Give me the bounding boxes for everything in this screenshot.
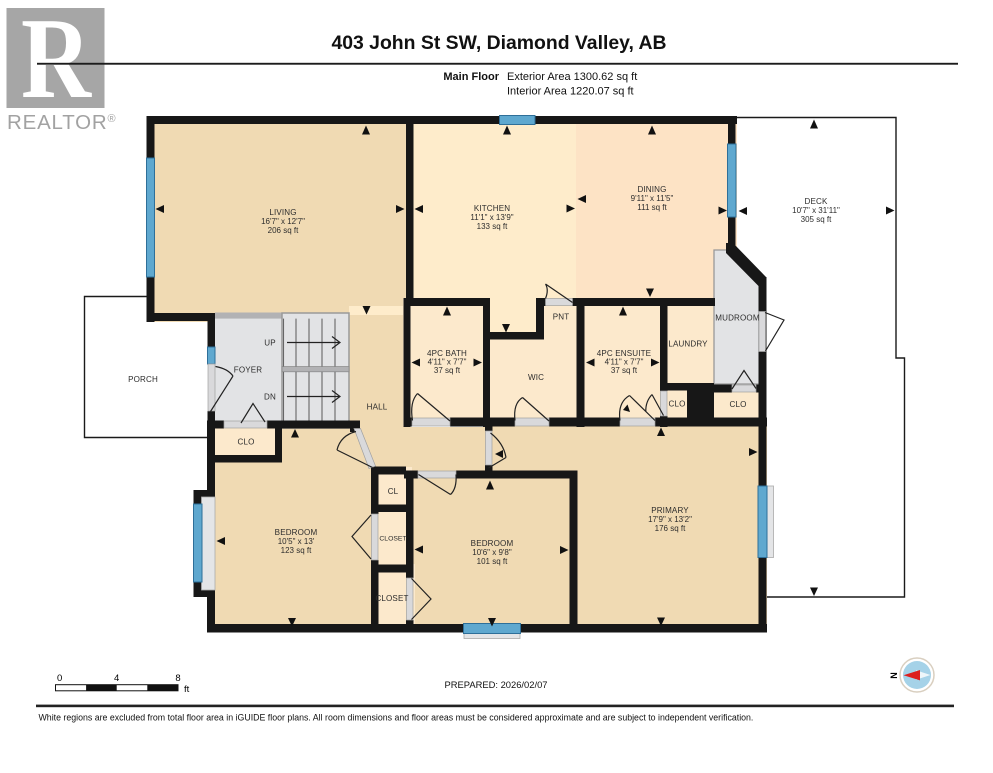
svg-text:REALTOR®: REALTOR® <box>7 111 116 134</box>
svg-text:MUDROOM: MUDROOM <box>715 314 760 323</box>
svg-text:DINING: DINING <box>637 185 666 194</box>
svg-text:DN: DN <box>264 393 276 402</box>
svg-text:BEDROOM: BEDROOM <box>471 539 514 548</box>
svg-text:PNT: PNT <box>553 313 570 322</box>
svg-text:Exterior Area 1300.62 sq ft: Exterior Area 1300.62 sq ft <box>507 71 637 83</box>
svg-text:10'6" x 9'8": 10'6" x 9'8" <box>472 548 512 557</box>
svg-text:PORCH: PORCH <box>128 375 158 384</box>
svg-text:37 sq ft: 37 sq ft <box>434 366 461 375</box>
svg-text:111 sq ft: 111 sq ft <box>637 203 667 212</box>
svg-text:133 sq ft: 133 sq ft <box>477 222 508 231</box>
svg-text:16'7" x 12'7": 16'7" x 12'7" <box>261 217 305 226</box>
svg-text:4: 4 <box>114 673 119 684</box>
svg-text:UP: UP <box>264 339 275 348</box>
svg-text:Interior Area 1220.07 sq ft: Interior Area 1220.07 sq ft <box>507 86 634 98</box>
svg-text:CLOSET: CLOSET <box>379 536 406 543</box>
svg-text:CL: CL <box>388 487 399 496</box>
svg-text:123 sq ft: 123 sq ft <box>281 546 312 555</box>
svg-text:305 sq ft: 305 sq ft <box>801 215 832 224</box>
svg-text:10'7" x 31'11": 10'7" x 31'11" <box>792 206 840 215</box>
svg-text:37 sq ft: 37 sq ft <box>611 366 638 375</box>
svg-text:CLO: CLO <box>238 438 255 447</box>
svg-text:White regions are excluded fro: White regions are excluded from total fl… <box>39 713 754 723</box>
svg-text:403 John St SW, Diamond Valley: 403 John St SW, Diamond Valley, AB <box>331 32 666 54</box>
svg-text:CLO: CLO <box>730 400 747 409</box>
svg-text:11'1" x 13'9": 11'1" x 13'9" <box>470 213 513 222</box>
svg-text:PRIMARY: PRIMARY <box>651 506 689 515</box>
svg-text:0: 0 <box>57 673 62 684</box>
svg-text:N: N <box>889 672 899 679</box>
svg-text:8: 8 <box>175 673 180 684</box>
svg-text:DECK: DECK <box>805 197 828 206</box>
svg-text:LIVING: LIVING <box>269 208 296 217</box>
svg-text:R: R <box>21 0 92 123</box>
svg-text:ft: ft <box>184 684 190 695</box>
svg-text:PREPARED: 2026/02/07: PREPARED: 2026/02/07 <box>444 679 547 690</box>
svg-text:KITCHEN: KITCHEN <box>474 204 510 213</box>
svg-text:HALL: HALL <box>367 403 388 412</box>
svg-text:FOYER: FOYER <box>234 366 263 375</box>
svg-text:LAUNDRY: LAUNDRY <box>668 340 708 349</box>
svg-text:206 sq ft: 206 sq ft <box>268 226 299 235</box>
svg-text:17'9" x 13'2": 17'9" x 13'2" <box>648 515 692 524</box>
svg-text:WIC: WIC <box>528 373 544 382</box>
svg-text:CLO: CLO <box>669 400 686 409</box>
svg-text:101 sq ft: 101 sq ft <box>477 557 508 566</box>
svg-text:Main Floor: Main Floor <box>443 71 499 83</box>
svg-text:BEDROOM: BEDROOM <box>275 528 318 537</box>
svg-text:9'11" x 11'5": 9'11" x 11'5" <box>631 194 674 203</box>
svg-text:10'5" x 13': 10'5" x 13' <box>278 537 315 546</box>
svg-text:CLOSET: CLOSET <box>375 594 408 603</box>
svg-text:176 sq ft: 176 sq ft <box>655 524 686 533</box>
